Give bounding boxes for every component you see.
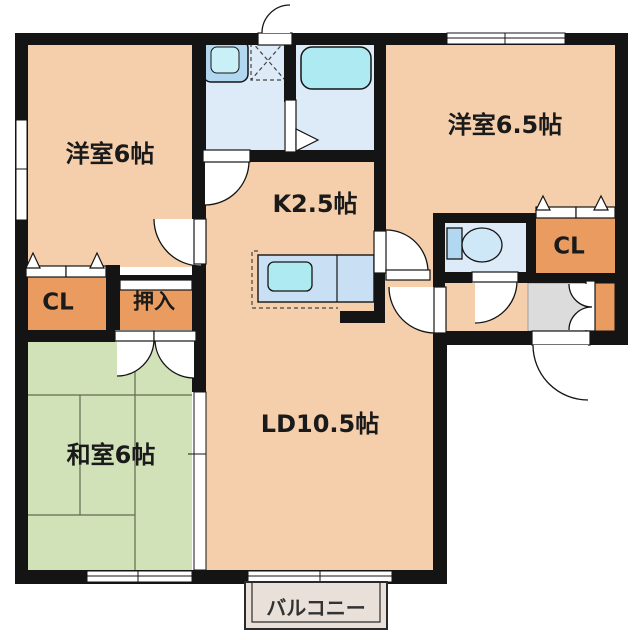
window-japanese-room-south — [87, 571, 192, 582]
toilet — [447, 228, 502, 262]
room-label-balcony: バルコニー — [266, 598, 366, 618]
room-label-closet-right: CL — [553, 236, 585, 259]
door-hall-living — [434, 287, 446, 333]
room-label-bedroom2: 洋室6.5帖 — [448, 113, 563, 137]
kitchen-sink — [268, 262, 312, 291]
door-oshiire-right — [154, 331, 196, 341]
room-label-living-dining: LD10.5帖 — [261, 412, 379, 436]
window-living-balcony — [248, 571, 392, 582]
door-toilet — [472, 272, 518, 282]
door-north — [258, 33, 292, 45]
door-kitchen-corridor — [374, 231, 386, 273]
washbasin-bowl — [211, 47, 239, 73]
floor-kitchen-living — [206, 160, 374, 572]
door-entrance — [532, 331, 590, 345]
floor-plan: 洋室6帖 洋室6.5帖 K2.5帖 LD10.5帖 和室6帖 CL 押入 CL … — [0, 0, 640, 640]
door-bath-opening — [285, 100, 296, 152]
bathtub — [301, 47, 371, 89]
room-label-japanese-room: 和室6帖 — [67, 443, 156, 467]
window-bedroom1-west — [16, 120, 27, 220]
room-label-kitchen: K2.5帖 — [272, 192, 357, 216]
door-bedroom1 — [194, 219, 206, 264]
door-kitchen-corridor-panel — [386, 270, 430, 280]
window-bedroom2-north — [447, 33, 565, 44]
door-washroom — [203, 150, 250, 162]
kitchen-counter — [252, 251, 374, 308]
room-label-oshiire: 押入 — [133, 292, 175, 313]
room-label-closet-left: CL — [42, 292, 74, 315]
door-oshiire-north — [120, 280, 192, 290]
floor-plan-drawing — [0, 0, 640, 640]
door-oshiire-left — [115, 331, 154, 341]
room-label-bedroom1: 洋室6帖 — [66, 142, 155, 166]
shoe-cabinet — [594, 283, 615, 331]
